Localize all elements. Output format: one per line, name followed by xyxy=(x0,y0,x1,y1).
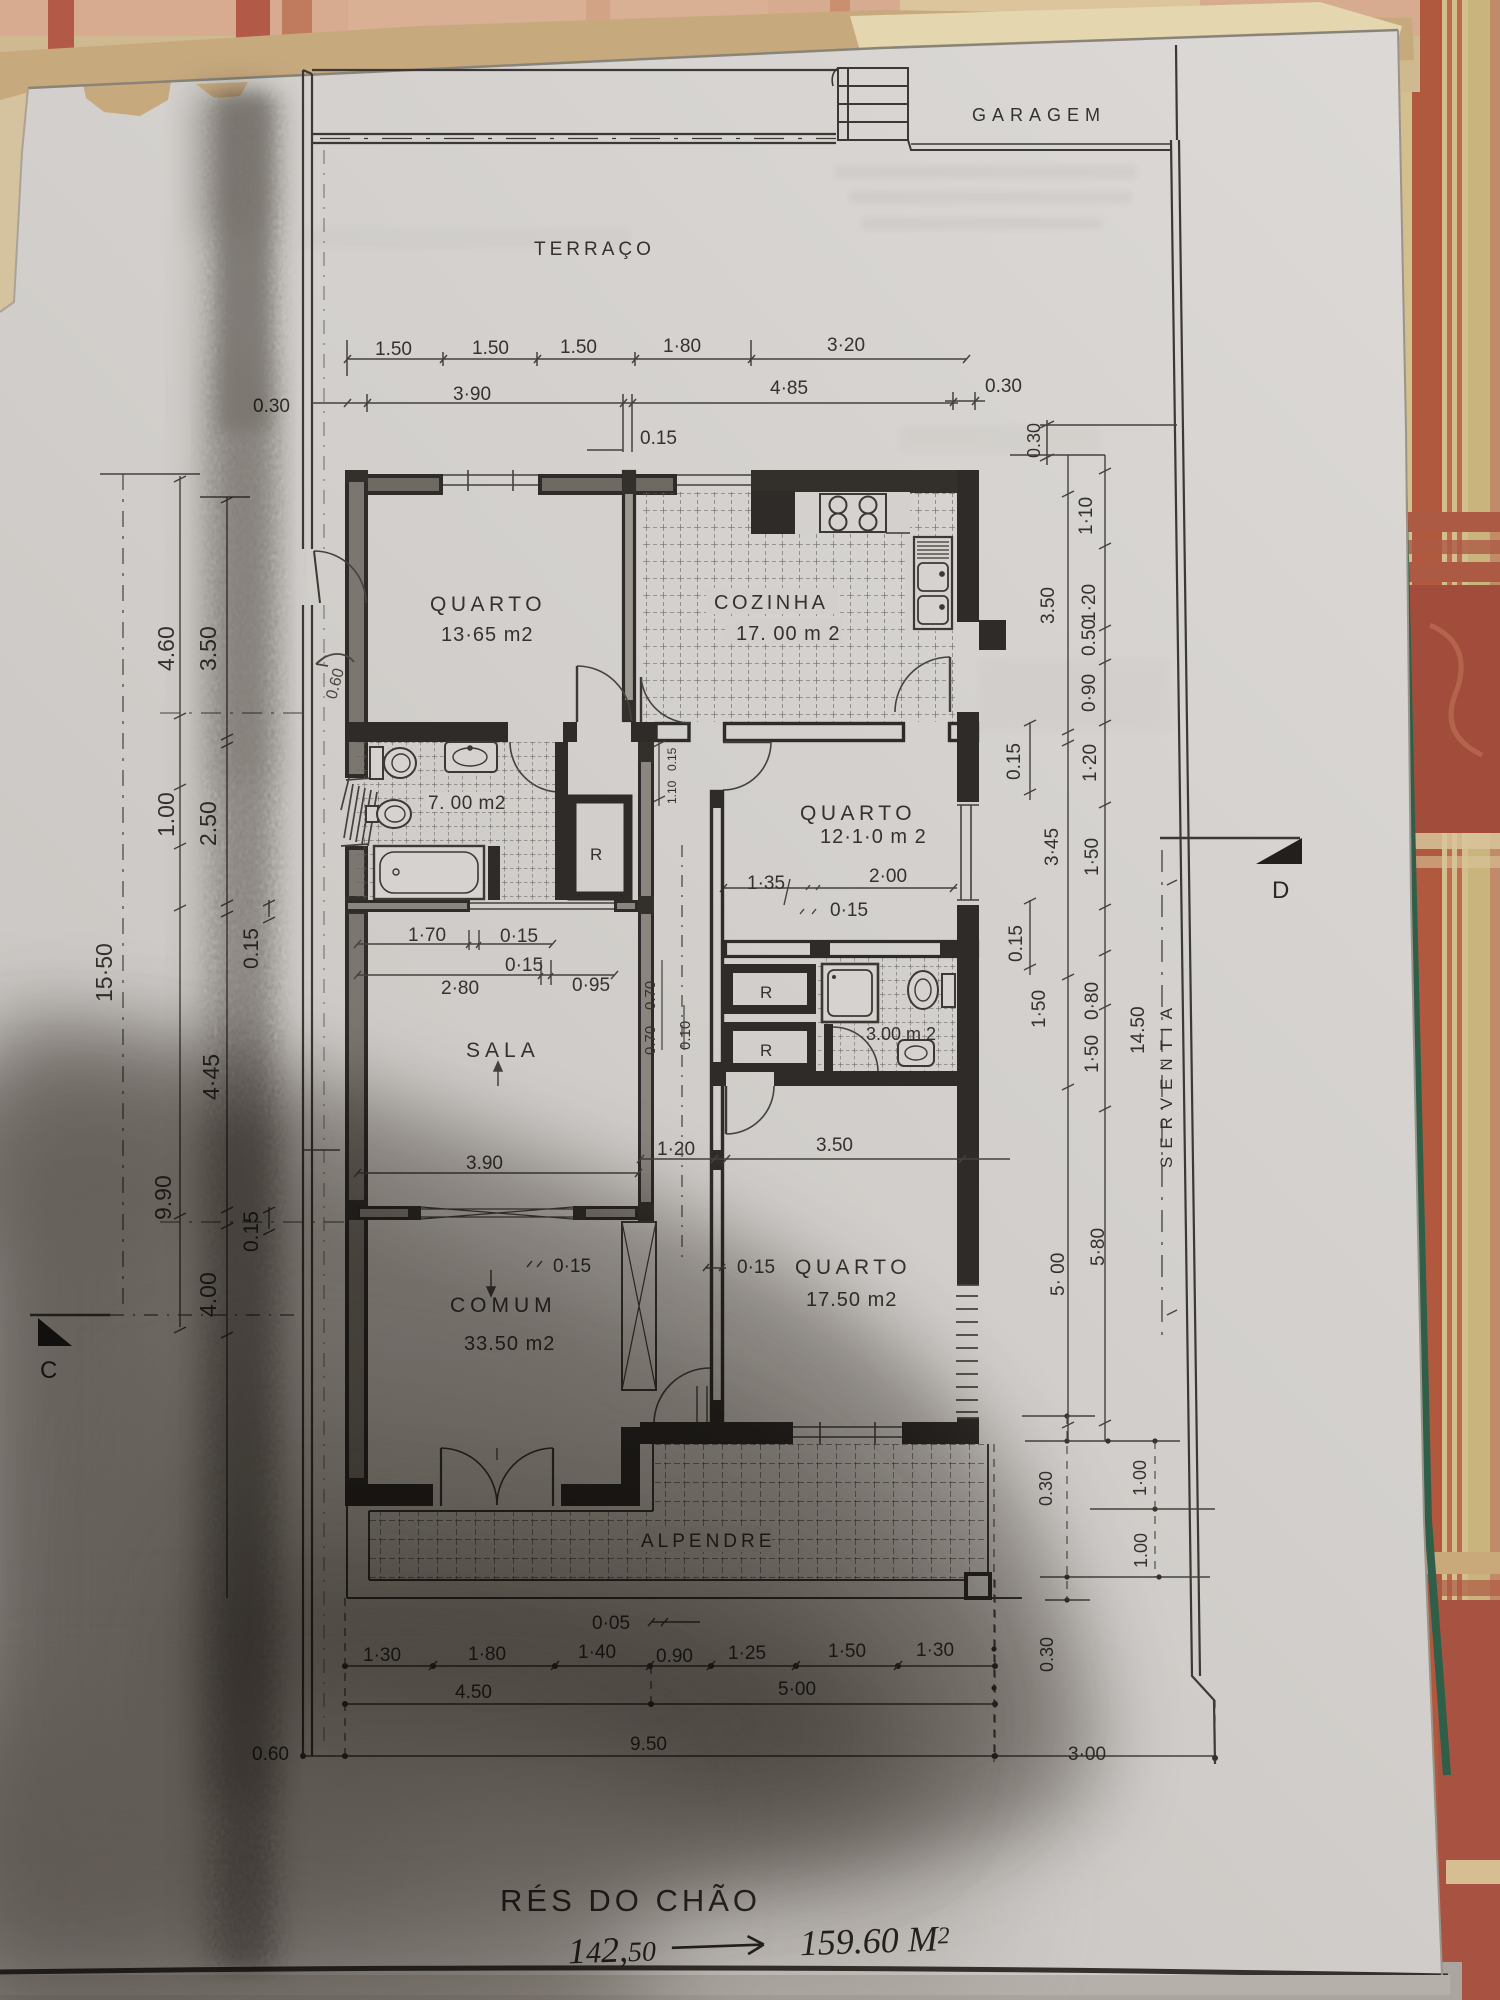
svg-text:4.60: 4.60 xyxy=(153,626,179,671)
svg-text:4·85: 4·85 xyxy=(770,378,808,399)
svg-text:12·1·0 m 2: 12·1·0 m 2 xyxy=(820,826,927,848)
svg-text:1·20: 1·20 xyxy=(1080,744,1101,782)
svg-text:0·15: 0·15 xyxy=(830,900,868,921)
svg-text:2·80: 2·80 xyxy=(441,978,479,999)
svg-text:0·15: 0·15 xyxy=(505,955,543,976)
svg-text:2·00: 2·00 xyxy=(869,866,907,887)
svg-text:1·20: 1·20 xyxy=(657,1139,695,1160)
svg-text:0.50: 0.50 xyxy=(1079,619,1100,656)
svg-text:GARAGEM: GARAGEM xyxy=(972,105,1106,125)
svg-text:SALA: SALA xyxy=(466,1039,540,1062)
svg-text:QUARTO: QUARTO xyxy=(795,1256,911,1279)
svg-text:QUARTO: QUARTO xyxy=(800,802,916,825)
svg-text:0.15: 0.15 xyxy=(665,747,679,771)
svg-text:1·00: 1·00 xyxy=(1130,1460,1150,1496)
svg-text:1·70: 1·70 xyxy=(408,925,446,946)
svg-text:1·10: 1·10 xyxy=(1076,497,1097,535)
svg-text:0.30: 0.30 xyxy=(985,376,1022,397)
svg-text:R: R xyxy=(760,983,772,1002)
svg-text:1.00: 1.00 xyxy=(1131,1533,1151,1568)
svg-text:0·80: 0·80 xyxy=(1082,982,1103,1020)
svg-text:1.00: 1.00 xyxy=(153,792,179,837)
svg-text:3·90: 3·90 xyxy=(453,384,491,405)
svg-text:0.30: 0.30 xyxy=(1036,1471,1056,1506)
svg-text:3.50: 3.50 xyxy=(1038,587,1059,624)
svg-text:TERRAÇO: TERRAÇO xyxy=(534,239,655,260)
svg-text:D: D xyxy=(1272,877,1289,904)
svg-text:3·45: 3·45 xyxy=(1042,828,1063,866)
svg-text:0.15: 0.15 xyxy=(1006,925,1027,962)
svg-text:1·35: 1·35 xyxy=(747,873,785,894)
svg-text:QUARTO: QUARTO xyxy=(430,593,546,616)
svg-text:1.50: 1.50 xyxy=(375,339,412,360)
svg-text:1·20: 1·20 xyxy=(1079,584,1100,622)
svg-text:0.15: 0.15 xyxy=(640,428,677,449)
svg-text:5· 00: 5· 00 xyxy=(1048,1253,1069,1296)
svg-text:5·80: 5·80 xyxy=(1088,1228,1109,1266)
svg-text:0·90: 0·90 xyxy=(1079,674,1100,712)
svg-text:1.50: 1.50 xyxy=(560,337,597,358)
svg-text:15·50: 15·50 xyxy=(91,943,117,1002)
svg-text:R: R xyxy=(760,1041,772,1060)
svg-text:3.00 m 2: 3.00 m 2 xyxy=(866,1024,936,1044)
svg-text:17. 00 m 2: 17. 00 m 2 xyxy=(736,623,841,645)
svg-text:0.15: 0.15 xyxy=(1004,743,1025,780)
svg-text:7. 00 m2: 7. 00 m2 xyxy=(428,793,506,814)
svg-text:13·65 m2: 13·65 m2 xyxy=(441,624,534,646)
svg-text:3.50: 3.50 xyxy=(816,1135,853,1156)
svg-text:0.70: 0.70 xyxy=(642,981,659,1010)
svg-text:COZINHA: COZINHA xyxy=(714,592,829,614)
svg-text:1·80: 1·80 xyxy=(663,336,701,357)
svg-text:0·15: 0·15 xyxy=(500,926,538,947)
svg-text:R: R xyxy=(590,845,602,864)
svg-text:0.30: 0.30 xyxy=(1024,423,1044,458)
svg-text:14.50: 14.50 xyxy=(1128,1006,1149,1054)
svg-text:3·20: 3·20 xyxy=(827,335,865,356)
svg-text:1·50: 1·50 xyxy=(1029,990,1050,1028)
svg-text:1·50: 1·50 xyxy=(1082,1035,1103,1073)
svg-text:SERVENTIA: SERVENTIA xyxy=(1157,1000,1176,1168)
svg-text:0.10: 0.10 xyxy=(677,1021,694,1050)
svg-text:0.70: 0.70 xyxy=(642,1026,659,1055)
svg-text:1.50: 1.50 xyxy=(472,338,509,359)
svg-text:1.10: 1.10 xyxy=(665,780,679,804)
svg-text:1·50: 1·50 xyxy=(1082,838,1103,876)
svg-text:0·95: 0·95 xyxy=(572,975,610,996)
